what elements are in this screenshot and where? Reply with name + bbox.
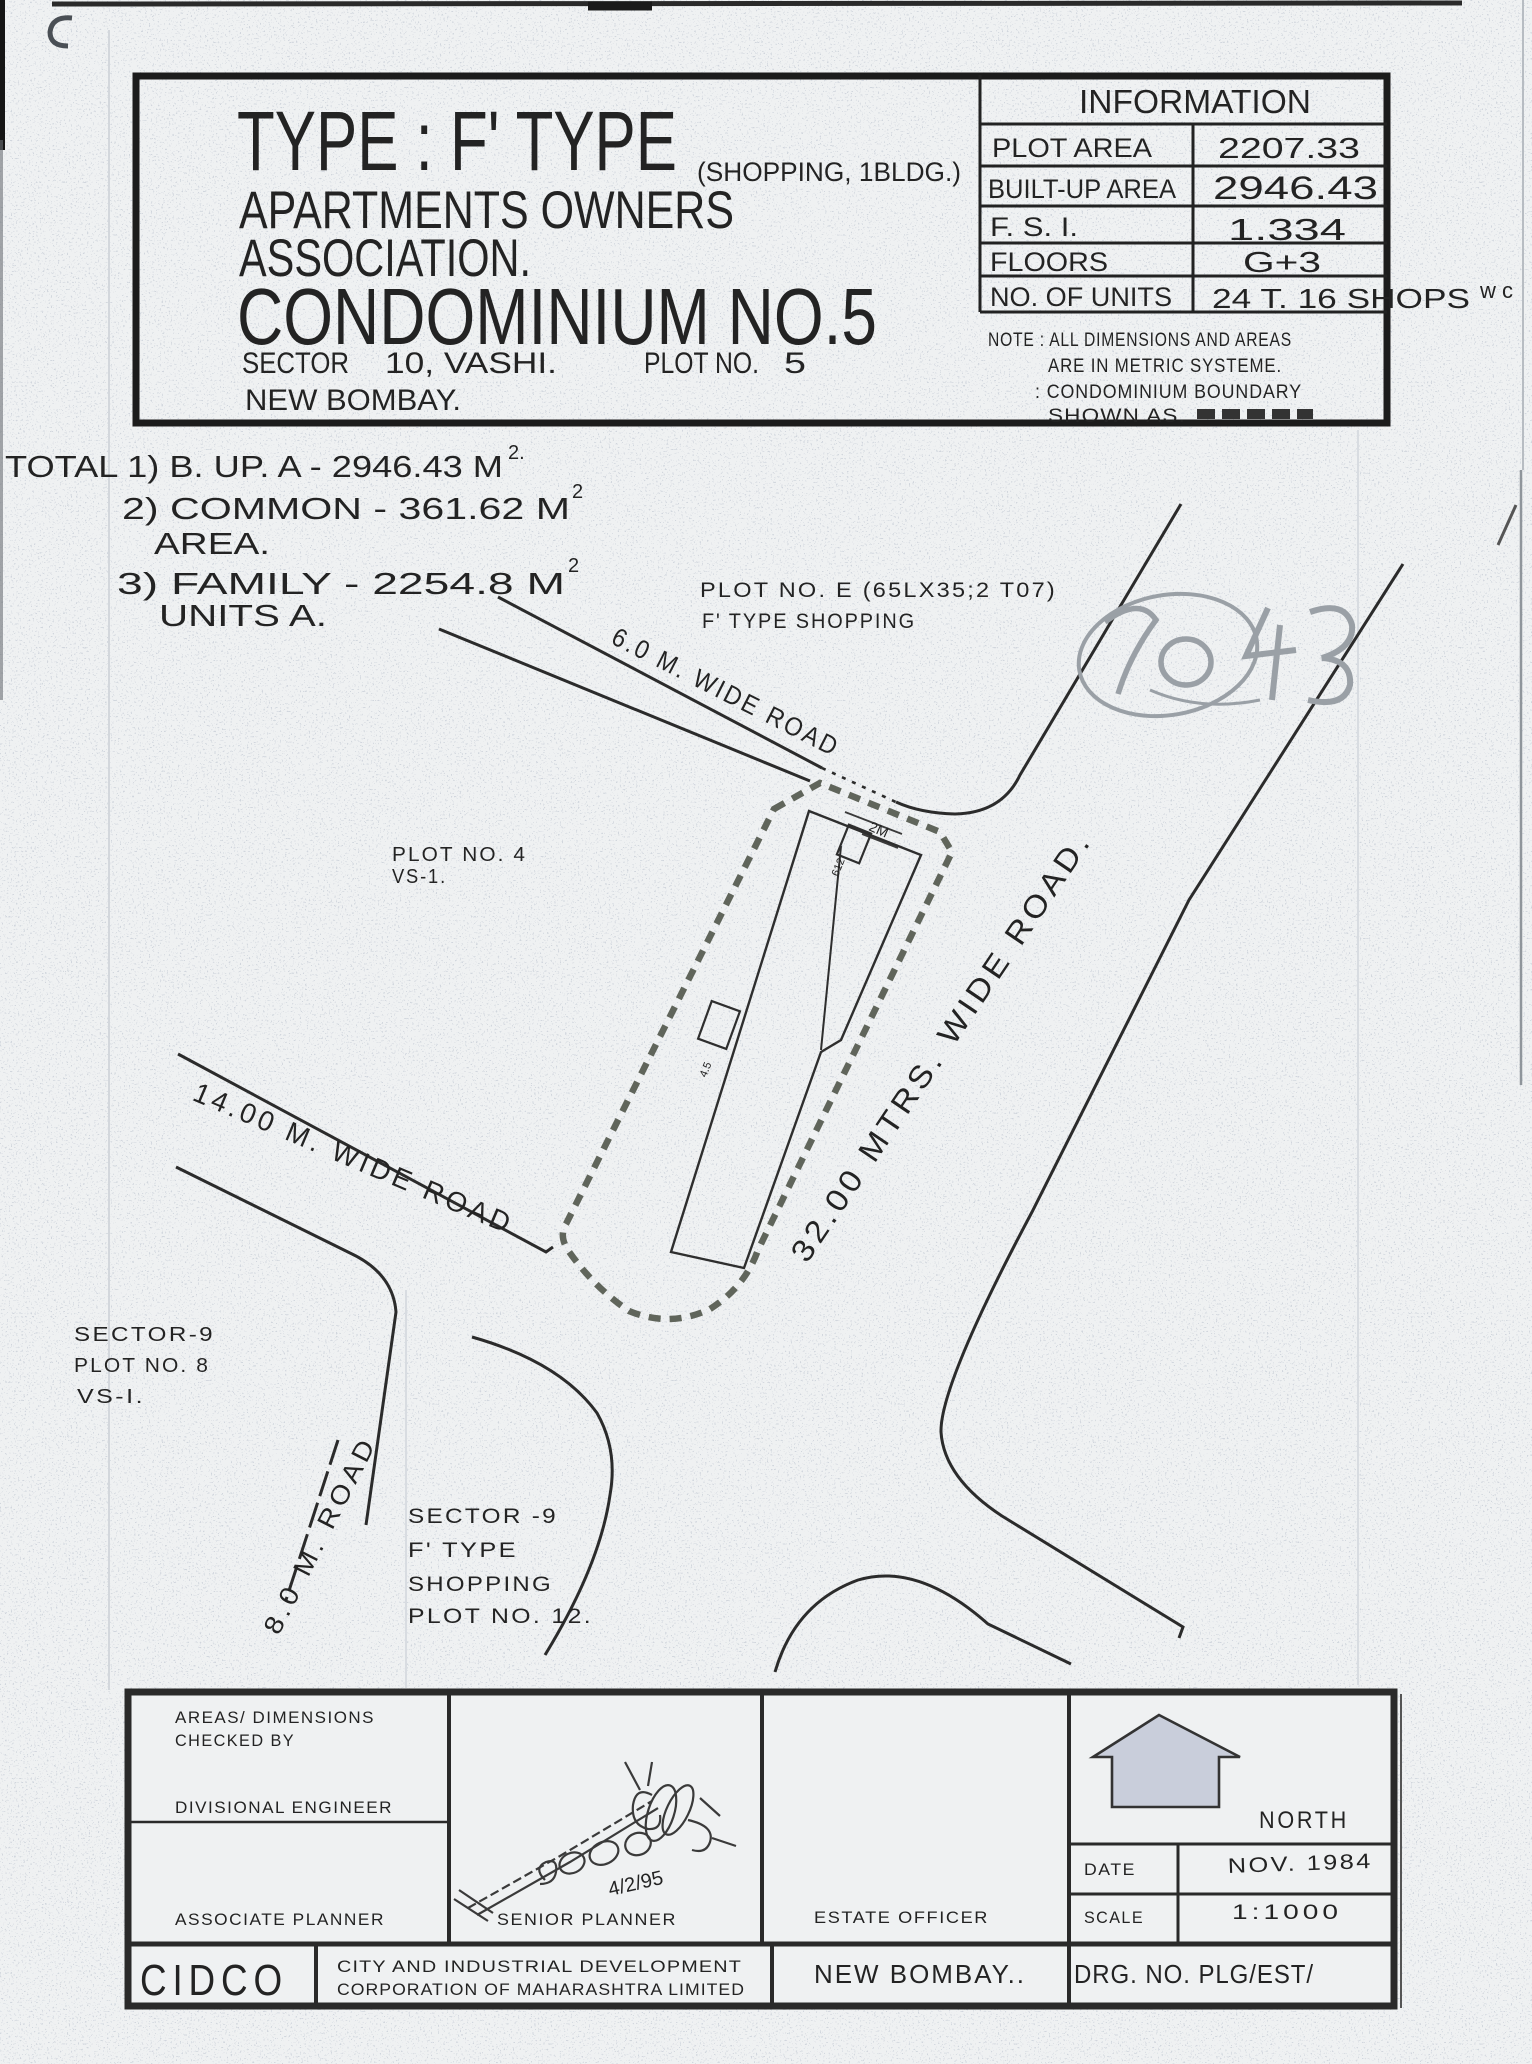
svg-text:2946.43: 2946.43 (1213, 170, 1378, 206)
svg-text:(SHOPPING, 1BLDG.): (SHOPPING, 1BLDG.) (697, 157, 961, 187)
svg-text:NEW BOMBAY..: NEW BOMBAY.. (814, 1959, 1026, 1989)
svg-text:5: 5 (784, 347, 806, 380)
svg-text:FLOORS: FLOORS (990, 247, 1108, 277)
svg-text:CIDCO: CIDCO (140, 1956, 288, 2005)
svg-text:TOTAL 1) B. UP. A - 2946.43 M: TOTAL 1) B. UP. A - 2946.43 M (5, 449, 503, 484)
svg-text:NEW BOMBAY.: NEW BOMBAY. (245, 384, 461, 417)
svg-text:VS-I.: VS-I. (77, 1386, 145, 1408)
svg-text:10, VASHI.: 10, VASHI. (385, 347, 557, 380)
svg-text:PLOT NO.: PLOT NO. (644, 347, 759, 380)
svg-text:: CONDOMINIUM BOUNDARY: : CONDOMINIUM BOUNDARY (1035, 381, 1302, 403)
svg-text:CITY AND INDUSTRIAL DEVELOP: CITY AND INDUSTRIAL DEVELOPMENT (337, 1957, 742, 1976)
svg-text:BUILT-UP AREA: BUILT-UP AREA (988, 174, 1176, 204)
svg-text:DIVISIONAL ENGINEER: DIVISIONAL ENGINEER (175, 1798, 393, 1817)
svg-text:INFORMATION: INFORMATION (1079, 83, 1311, 120)
svg-text:SECTOR -9: SECTOR -9 (408, 1505, 558, 1528)
svg-text:SHOPPING: SHOPPING (408, 1573, 553, 1596)
svg-text:NOTE : ALL DIMENSIONS AND AREA: NOTE : ALL DIMENSIONS AND AREAS (988, 329, 1292, 351)
svg-text:SCALE: SCALE (1084, 1908, 1144, 1927)
svg-text:2207.33: 2207.33 (1218, 133, 1360, 165)
svg-text:NORTH: NORTH (1259, 1807, 1349, 1834)
svg-text:F. S. I.: F. S. I. (990, 212, 1078, 242)
svg-text:CORPORATION OF MAHARASHTRA LIM: CORPORATION OF MAHARASHTRA LIMITED (337, 1980, 745, 1999)
svg-text:1:1000: 1:1000 (1232, 1901, 1342, 1924)
svg-text:2.: 2. (508, 442, 525, 464)
svg-text:2: 2 (568, 555, 579, 577)
svg-text:UNITS A.: UNITS A. (159, 598, 327, 633)
svg-text:PLOT AREA: PLOT AREA (992, 133, 1152, 163)
svg-text:ARE IN METRIC SYSTEME.: ARE IN METRIC SYSTEME. (1048, 355, 1282, 377)
svg-text:NO. OF UNITS: NO. OF UNITS (990, 282, 1172, 312)
svg-text:24 T. 16 SHOPS: 24 T. 16 SHOPS (1212, 283, 1470, 314)
svg-text:DATE: DATE (1084, 1860, 1136, 1879)
svg-text:VS-1.: VS-1. (392, 866, 447, 888)
svg-text:1.334: 1.334 (1228, 212, 1346, 247)
svg-text:F' TYPE: F' TYPE (408, 1539, 518, 1562)
svg-text:TYPE : F' TYPE: TYPE : F' TYPE (237, 94, 677, 188)
svg-text:PLOT NO. E (65LX35;2 T07): PLOT NO. E (65LX35;2 T07) (700, 579, 1057, 602)
svg-text:G+3: G+3 (1243, 247, 1321, 279)
svg-text:F' TYPE SHOPPING: F' TYPE SHOPPING (702, 610, 916, 633)
svg-text:AREAS/ DIMENSIONS: AREAS/ DIMENSIONS (175, 1708, 375, 1727)
svg-text:SECTOR-9: SECTOR-9 (74, 1324, 215, 1346)
svg-text:PLOT NO. 4: PLOT NO. 4 (392, 844, 527, 866)
svg-text:w c: w c (1479, 278, 1513, 303)
svg-text:AREA.: AREA. (154, 526, 270, 561)
svg-text:3) FAMILY - 2254.8 M: 3) FAMILY - 2254.8 M (117, 566, 565, 601)
svg-text:PLOT NO. 12.: PLOT NO. 12. (408, 1605, 593, 1628)
svg-text:CHECKED BY: CHECKED BY (175, 1731, 295, 1750)
svg-text:SECTOR: SECTOR (242, 347, 349, 380)
svg-text:ASSOCIATE PLANNER: ASSOCIATE PLANNER (175, 1910, 385, 1929)
svg-text:SHOWN AS.: SHOWN AS. (1048, 405, 1186, 427)
svg-text:PLOT NO. 8: PLOT NO. 8 (74, 1355, 210, 1377)
svg-text:DRG. NO. PLG/EST/: DRG. NO. PLG/EST/ (1074, 1959, 1314, 1989)
svg-text:ESTATE OFFICER: ESTATE OFFICER (814, 1908, 989, 1927)
svg-text:2: 2 (572, 481, 583, 503)
svg-text:2) COMMON - 361.62 M: 2) COMMON - 361.62 M (122, 491, 570, 526)
svg-text:SENIOR PLANNER: SENIOR PLANNER (497, 1910, 677, 1929)
